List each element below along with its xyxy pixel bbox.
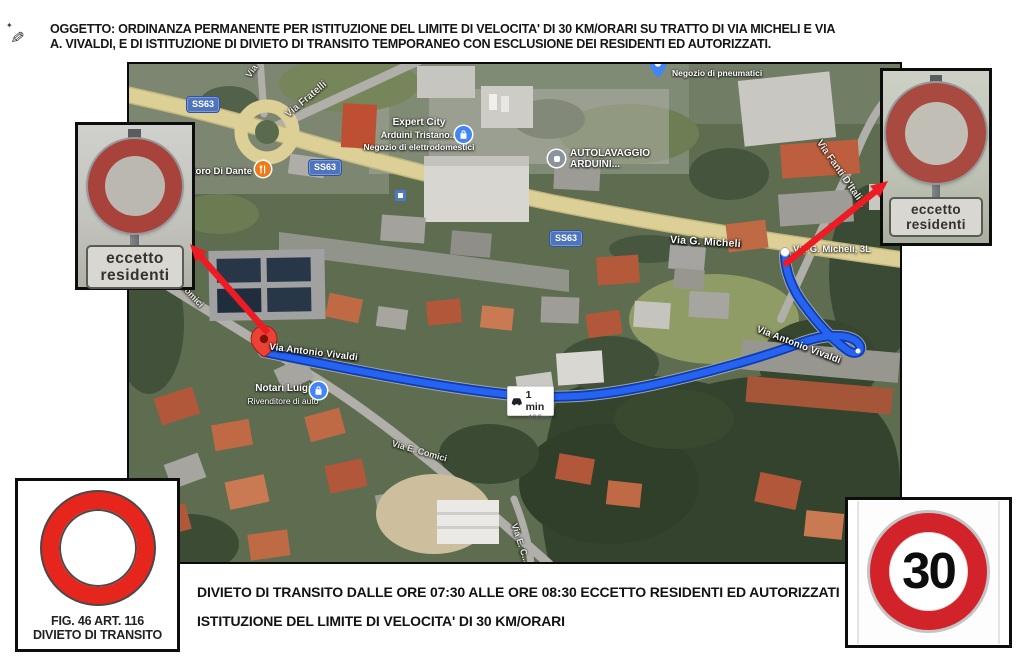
no-entry-sign-photo-right: eccetto residenti (880, 68, 992, 246)
poi-autolavaggio-line2: ARDUINI... (570, 159, 650, 170)
no-entry-sign-figure: FIG. 46 ART. 116 DIVIETO DI TRANSITO (15, 478, 180, 652)
satellite-imagery (129, 64, 900, 562)
pen-glyph-icon: ✎ (6, 29, 27, 45)
ss63-badge-3: SS63 (550, 231, 582, 246)
car-dealer-icon (310, 382, 327, 399)
car-icon (511, 396, 523, 407)
plaque-line-1: eccetto (911, 202, 961, 217)
satellite-map: SS63 SS63 SS63 Via Fratelli Via Via G. M… (127, 62, 902, 564)
speed-limit-ring: 30 (870, 513, 987, 630)
ss63-badge-1: SS63 (187, 97, 219, 112)
eta-duration: 1 min (526, 389, 550, 413)
figure-caption-line1: FIG. 46 ART. 116 (18, 614, 177, 628)
shopping-icon (455, 126, 472, 143)
poi-autolavaggio-line1: AUTOLAVAGGIO (570, 148, 650, 159)
plaque-line-2: residenti (100, 267, 169, 284)
no-entry-sign-photo-left: eccetto residenti (75, 122, 195, 290)
ss63-badge-2: SS63 (309, 160, 341, 175)
map-pin-icon (649, 62, 667, 84)
caption-divieto-transito: DIVIETO DI TRANSITO DALLE ORE 07:30 ALLE… (197, 584, 840, 600)
plaque-line-1: eccetto (106, 250, 164, 267)
plaque-line-2: residenti (906, 217, 966, 232)
route-eta-badge: 1 min 400m (507, 386, 554, 416)
no-entry-ring (886, 83, 986, 183)
no-entry-center (105, 156, 165, 216)
poi-label-autolavaggio: AUTOLAVAGGIO ARDUINI... (570, 148, 650, 170)
figure-caption-line2: DIVIETO DI TRANSITO (18, 628, 177, 642)
car-wash-icon (548, 150, 565, 167)
eta-distance: 400m (527, 413, 550, 423)
address-label-micheli-3l: Via G. Micheli, 3L (793, 244, 871, 255)
poi-label-negozio-pneumatici: Negozio di pneumatici (672, 68, 762, 78)
eccetto-residenti-plaque: eccetto residenti (889, 197, 983, 237)
speed-limit-value: 30 (902, 541, 955, 600)
no-entry-ring (88, 139, 182, 233)
destination-dot (781, 248, 790, 257)
ordinance-figure-page: ✎ ✦ OGGETTO: ORDINANZA PERMANENTE PER IS… (0, 0, 1024, 665)
bus-stop-icon (395, 190, 406, 201)
no-entry-ring (42, 492, 154, 604)
sparkle-icon: ✦ (6, 21, 13, 30)
figure-caption: FIG. 46 ART. 116 DIVIETO DI TRANSITO (18, 614, 177, 642)
subject-heading: OGGETTO: ORDINANZA PERMANENTE PER ISTITU… (50, 22, 1010, 52)
speed-limit-30-sign: 30 (845, 497, 1012, 648)
subject-line-1: OGGETTO: ORDINANZA PERMANENTE PER ISTITU… (50, 22, 1010, 37)
restaurant-icon (255, 161, 271, 177)
subject-line-2: A. VIVALDI, E DI ISTITUZIONE DI DIVIETO … (50, 37, 1010, 52)
caption-limite-velocita: ISTITUZIONE DEL LIMITE DI VELOCITA' DI 3… (197, 613, 565, 629)
eccetto-residenti-plaque: eccetto residenti (86, 245, 184, 289)
pen-icon[interactable]: ✎ ✦ (6, 24, 34, 50)
no-entry-center (905, 102, 968, 165)
